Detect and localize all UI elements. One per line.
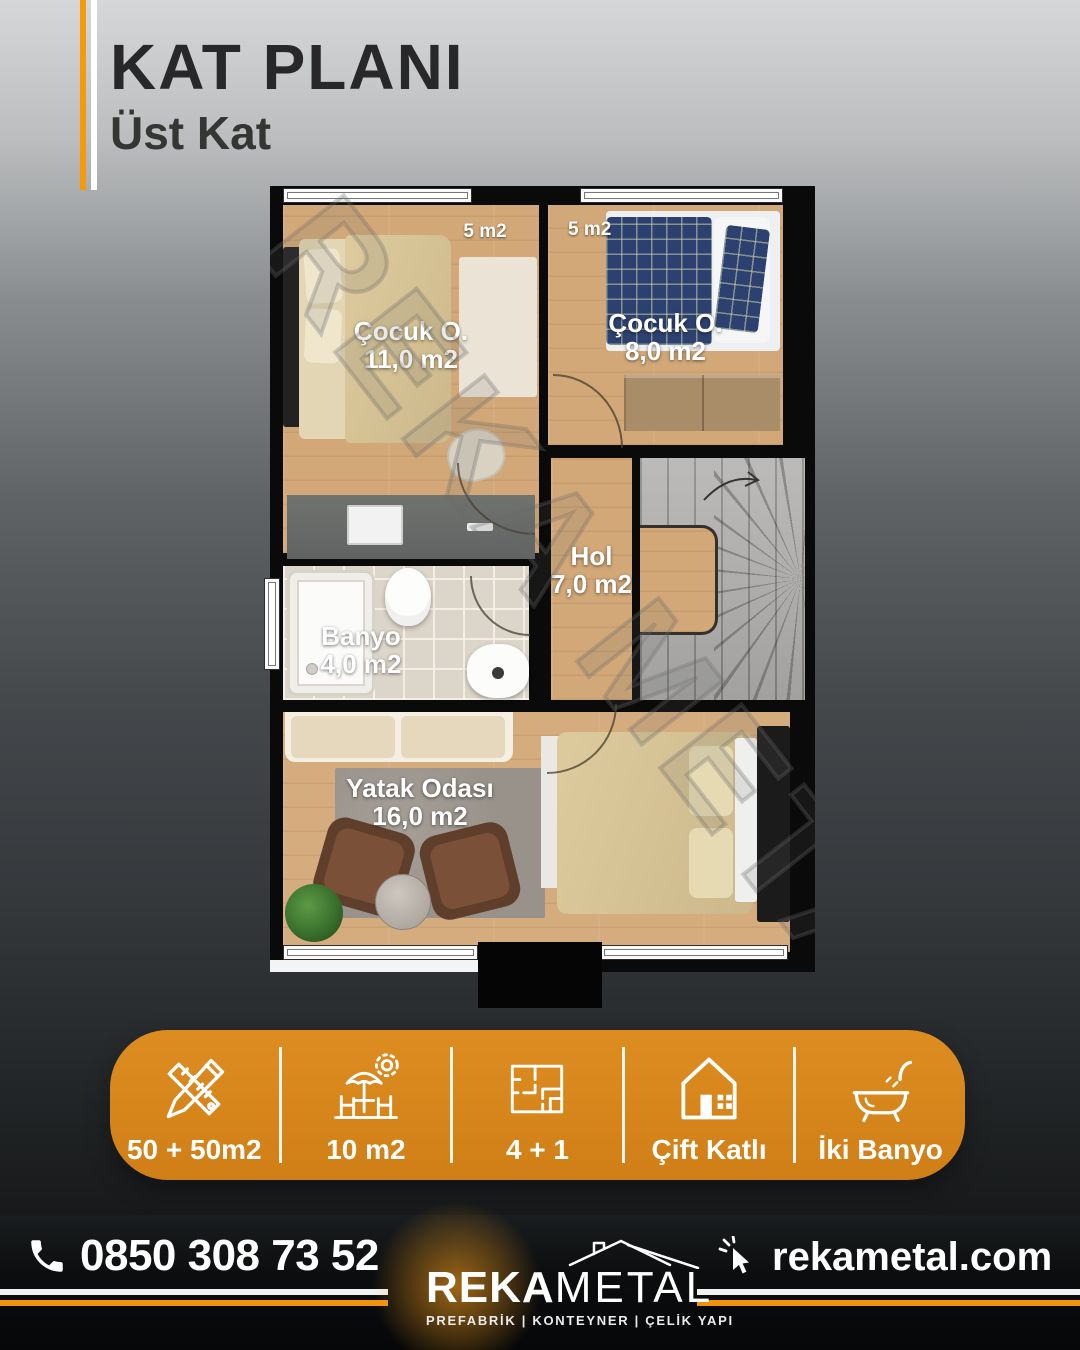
- white-accent-bar: [91, 0, 97, 190]
- brand-name: REKAMETAL: [426, 1263, 696, 1313]
- divider-line-white: [0, 1289, 388, 1295]
- ruler-pencil-icon: [156, 1051, 232, 1127]
- terrace-umbrella-icon: [328, 1051, 404, 1127]
- feature-item-bathrooms: İki Banyo: [796, 1030, 965, 1180]
- page-subtitle: Üst Kat: [110, 106, 271, 160]
- phone-icon: [26, 1235, 68, 1277]
- cursor-click-icon: [718, 1236, 762, 1280]
- website-contact: rekametal.com: [718, 1235, 1052, 1280]
- watermark-text: REKA METAL: [270, 186, 815, 972]
- divider-line-white: [697, 1289, 1080, 1295]
- floorplan-icon: [499, 1051, 575, 1127]
- feature-label: 4 + 1: [506, 1134, 569, 1166]
- divider-line-orange: [0, 1300, 388, 1306]
- phone-number: 0850 308 73 52: [80, 1231, 379, 1281]
- feature-item-area: 50 + 50m2: [110, 1030, 279, 1180]
- feature-label: İki Banyo: [818, 1134, 942, 1166]
- phone-contact: 0850 308 73 52: [26, 1231, 379, 1281]
- bathtub-icon: [843, 1051, 919, 1127]
- feature-item-terrace: 10 m2: [282, 1030, 451, 1180]
- feature-label: 50 + 50m2: [127, 1134, 262, 1166]
- feature-label: Çift Katlı: [652, 1134, 767, 1166]
- feature-label: 10 m2: [326, 1134, 405, 1166]
- brand-name-light: METAL: [555, 1263, 713, 1312]
- feature-bar: 50 + 50m2 10 m2: [110, 1030, 965, 1180]
- floor-plan: 5 m2 Çocuk O. 11,0 m2 5 m2 Çocuk O. 8,0 …: [270, 186, 815, 972]
- poster-page: KAT PLANI Üst Kat 5 m2 Çocuk O. 11,0 m2: [0, 0, 1080, 1350]
- footer-bar: 0850 308 73 52 REKAMETAL PREFABRİK | KON…: [0, 1215, 1080, 1350]
- website-url: rekametal.com: [772, 1235, 1052, 1280]
- feature-item-rooms: 4 + 1: [453, 1030, 622, 1180]
- divider-line-orange: [697, 1300, 1080, 1306]
- orange-accent-bar: [80, 0, 86, 190]
- feature-item-storeys: Çift Katlı: [625, 1030, 794, 1180]
- brand-tagline: PREFABRİK | KONTEYNER | ÇELİK YAPI: [426, 1313, 696, 1328]
- watermark-layer: REKA METAL: [270, 186, 815, 972]
- brand-logo: REKAMETAL PREFABRİK | KONTEYNER | ÇELİK …: [426, 1237, 696, 1337]
- brand-name-bold: REKA: [426, 1263, 555, 1312]
- page-title: KAT PLANI: [110, 30, 465, 104]
- house-icon: [671, 1051, 747, 1127]
